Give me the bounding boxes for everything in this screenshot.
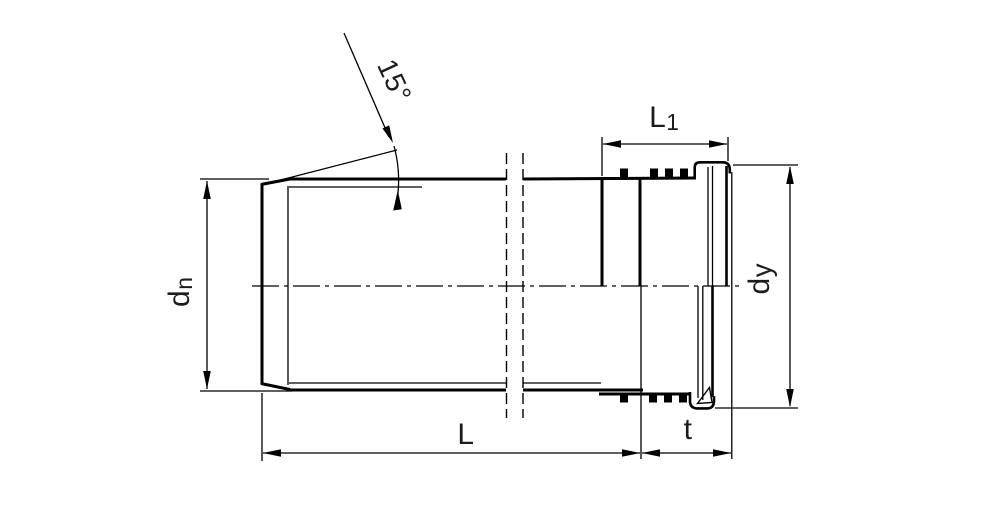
rib-icon	[620, 169, 628, 179]
socket-depth-dimension-label: t	[684, 415, 693, 445]
l1-label-main: L	[649, 101, 666, 134]
rib-icon	[650, 169, 658, 179]
dn-label-sub: n	[171, 277, 197, 290]
arrow-l1-left	[603, 140, 621, 147]
length-dimension-label: L	[457, 420, 474, 450]
arrow-t-left	[642, 449, 660, 456]
arrow-l-left	[263, 449, 281, 456]
l1-dimension-label: L1	[649, 103, 679, 133]
socket-lip-bottom	[690, 286, 714, 408]
rib-icon	[620, 393, 628, 403]
arrow-l1-right	[709, 140, 727, 147]
dy-label-sub: y	[746, 264, 777, 278]
pipe-drawing	[0, 0, 992, 527]
arrow-t-right	[713, 449, 731, 456]
arrow-angle-arc	[393, 190, 402, 211]
sealing-lip-glyph	[698, 388, 713, 404]
technical-drawing-canvas: 15° L1 dn dy L t	[0, 0, 992, 527]
arrow-dy-up	[786, 166, 794, 184]
l1-label-sub: 1	[666, 109, 679, 135]
rib-icon	[664, 393, 672, 403]
dn-label-main: d	[163, 290, 196, 307]
arrow-angle-leader	[383, 125, 394, 143]
dimension-arrowheads	[203, 125, 794, 457]
arrow-dn-up	[203, 181, 211, 199]
dy-dimension-label: dy	[745, 264, 775, 295]
rib-icon	[679, 393, 687, 403]
socket-section-walls	[602, 177, 640, 286]
arrow-dn-down	[203, 371, 211, 389]
rib-icon	[665, 169, 673, 179]
pipe-chamfer-bottom	[261, 384, 290, 390]
rib-icon	[649, 393, 657, 403]
arrow-dy-down	[786, 389, 794, 407]
dn-dimension-label: dn	[165, 277, 195, 307]
socket-lip-top	[695, 162, 730, 286]
angle-arc	[394, 146, 399, 193]
dy-label-main: d	[743, 277, 776, 294]
rib-icon	[680, 169, 688, 179]
arrow-l-right	[622, 449, 640, 456]
